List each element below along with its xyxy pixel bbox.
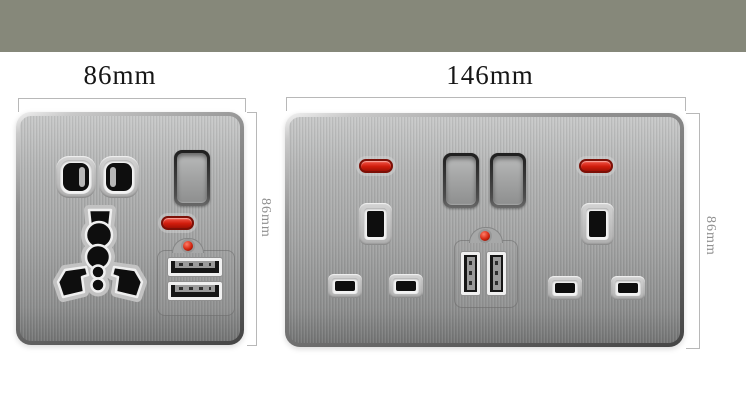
earth-slot-left [359, 203, 392, 245]
rocker-switch [174, 150, 210, 206]
width-bracket-right [286, 97, 686, 111]
pin-hole-notch [79, 167, 85, 187]
pin-slot-opening [396, 281, 416, 291]
height-bracket-right [686, 113, 700, 349]
pin-slot-opening [618, 283, 638, 293]
pin-slot-right-gang1 [389, 274, 423, 298]
universal-pin-hole-left [56, 156, 96, 198]
height-label-left: 86mm [257, 178, 273, 258]
double-socket-plate [285, 113, 684, 347]
product-dimension-image: 86mm 146mm 86mm 86mm [0, 0, 750, 412]
earth-slot-opening [367, 211, 384, 237]
usb-port-tongue [175, 285, 215, 292]
led-dot [480, 231, 490, 241]
pin-hole-opening [63, 163, 89, 191]
pin-slot-opening [555, 283, 575, 293]
rocker-switch-face [493, 156, 523, 205]
usb-port-bottom [167, 281, 223, 301]
usb-port-tongue [467, 257, 475, 290]
usb-port-right [486, 251, 507, 296]
neon-indicator-left [359, 159, 393, 173]
rocker-switch-right [490, 153, 526, 208]
width-bracket-left [18, 98, 246, 112]
usb-port-top [167, 257, 223, 277]
pin-slot-left-gang1 [328, 274, 362, 298]
pin-slot-opening [335, 281, 355, 291]
height-label-right: 86mm [702, 196, 718, 276]
width-label-left: 86mm [58, 60, 182, 91]
pin-slot-left-gang2 [548, 276, 582, 300]
earth-slot-right [581, 203, 614, 245]
universal-multi-socket-icon [52, 204, 150, 304]
pin-hole-notch [110, 167, 116, 187]
top-banner [0, 0, 746, 52]
universal-pin-hole-right [99, 156, 139, 198]
earth-slot-opening [589, 211, 606, 237]
neon-indicator [161, 216, 194, 230]
led-dot [183, 241, 193, 251]
rocker-switch-face [446, 156, 476, 205]
neon-indicator-right [579, 159, 613, 173]
rocker-switch-left [443, 153, 479, 208]
rocker-switch-face [177, 153, 207, 203]
height-bracket-left [247, 112, 257, 346]
single-socket-plate [16, 112, 244, 345]
usb-port-tongue [493, 257, 501, 290]
usb-port-tongue [175, 261, 215, 268]
usb-port-left [460, 251, 481, 296]
width-label-right: 146mm [428, 60, 552, 91]
pin-slot-right-gang2 [611, 276, 645, 300]
